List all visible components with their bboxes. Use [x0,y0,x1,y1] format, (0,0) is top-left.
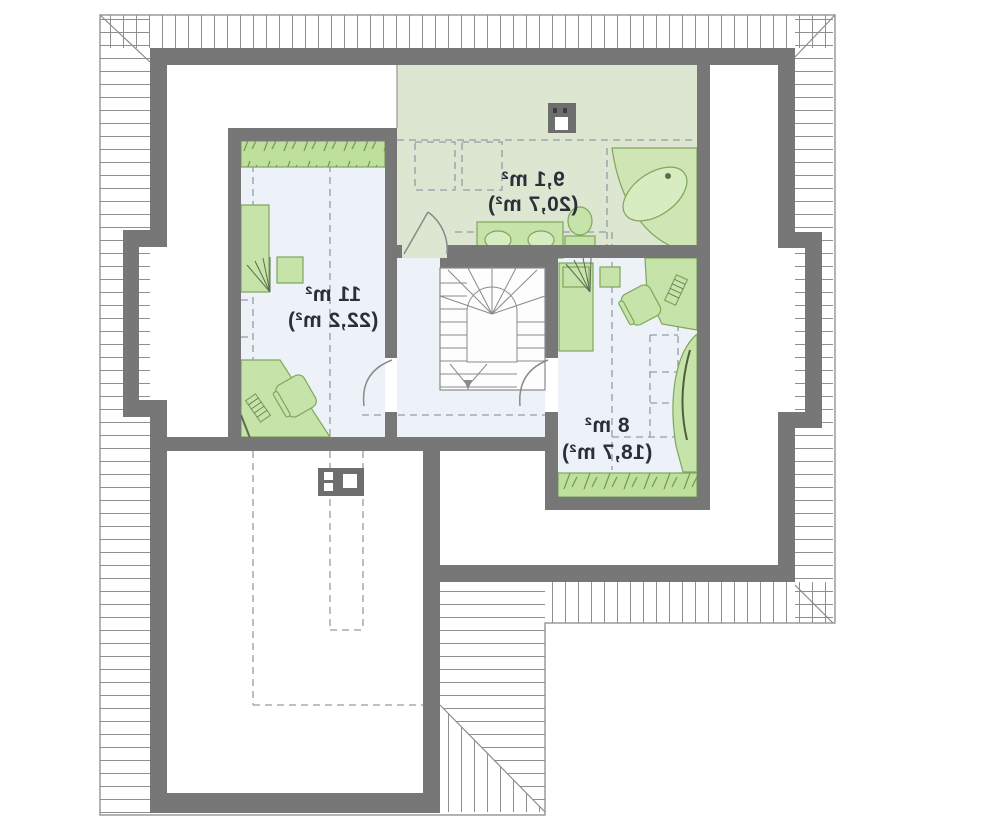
left-room-total-area-label: (22,2 m²) [288,309,379,332]
bathroom-total-area-label: (20,7 m²) [488,193,579,216]
floor-plan-page: 9,1 m² (20,7 m²) 11 m² (22,2 m²) 8 m² (1… [0,0,1000,822]
wall-right-room-bottom [545,497,710,510]
toilet-cistern [565,236,595,246]
right-room-area-label: 8 m² [584,414,629,437]
right-room-total-area-label: (18,7 m²) [562,441,653,464]
wall-left-upper [150,48,167,230]
wall-wing-right [423,450,440,793]
bathroom-area-label: 9,1 m² [501,168,565,191]
roof-band-top [100,15,835,48]
bathtub-tap [665,173,671,179]
wall-right-lower [778,428,795,582]
wall-bathroom-bottom [447,245,710,258]
wall-left-bay [123,247,139,400]
wall-left-room-top [228,128,397,141]
stool-left-room [277,257,303,283]
wall-wing-bottom [150,793,440,813]
wall-left-lower [150,417,167,793]
nightstand [600,267,620,287]
floor-plan-drawing: 9,1 m² (20,7 m²) 11 m² (22,2 m²) 8 m² (1… [0,0,1000,822]
roof-band-bottom-right [545,582,833,623]
wall-left-room-left [228,128,241,450]
wall-stair-right [545,258,558,358]
wall-right-upper [778,48,795,232]
wall-top [150,48,795,65]
wall-hall-bottom [150,437,558,451]
wall-left-room-right [385,141,397,358]
wall-bottom-right-section [430,565,795,582]
wall-rooms-right [697,65,710,510]
left-room-area-label: 11 m² [305,283,361,306]
desk-upper-left [241,205,269,292]
wall-right-bay [805,248,822,412]
lower-roof-upper [440,582,545,705]
